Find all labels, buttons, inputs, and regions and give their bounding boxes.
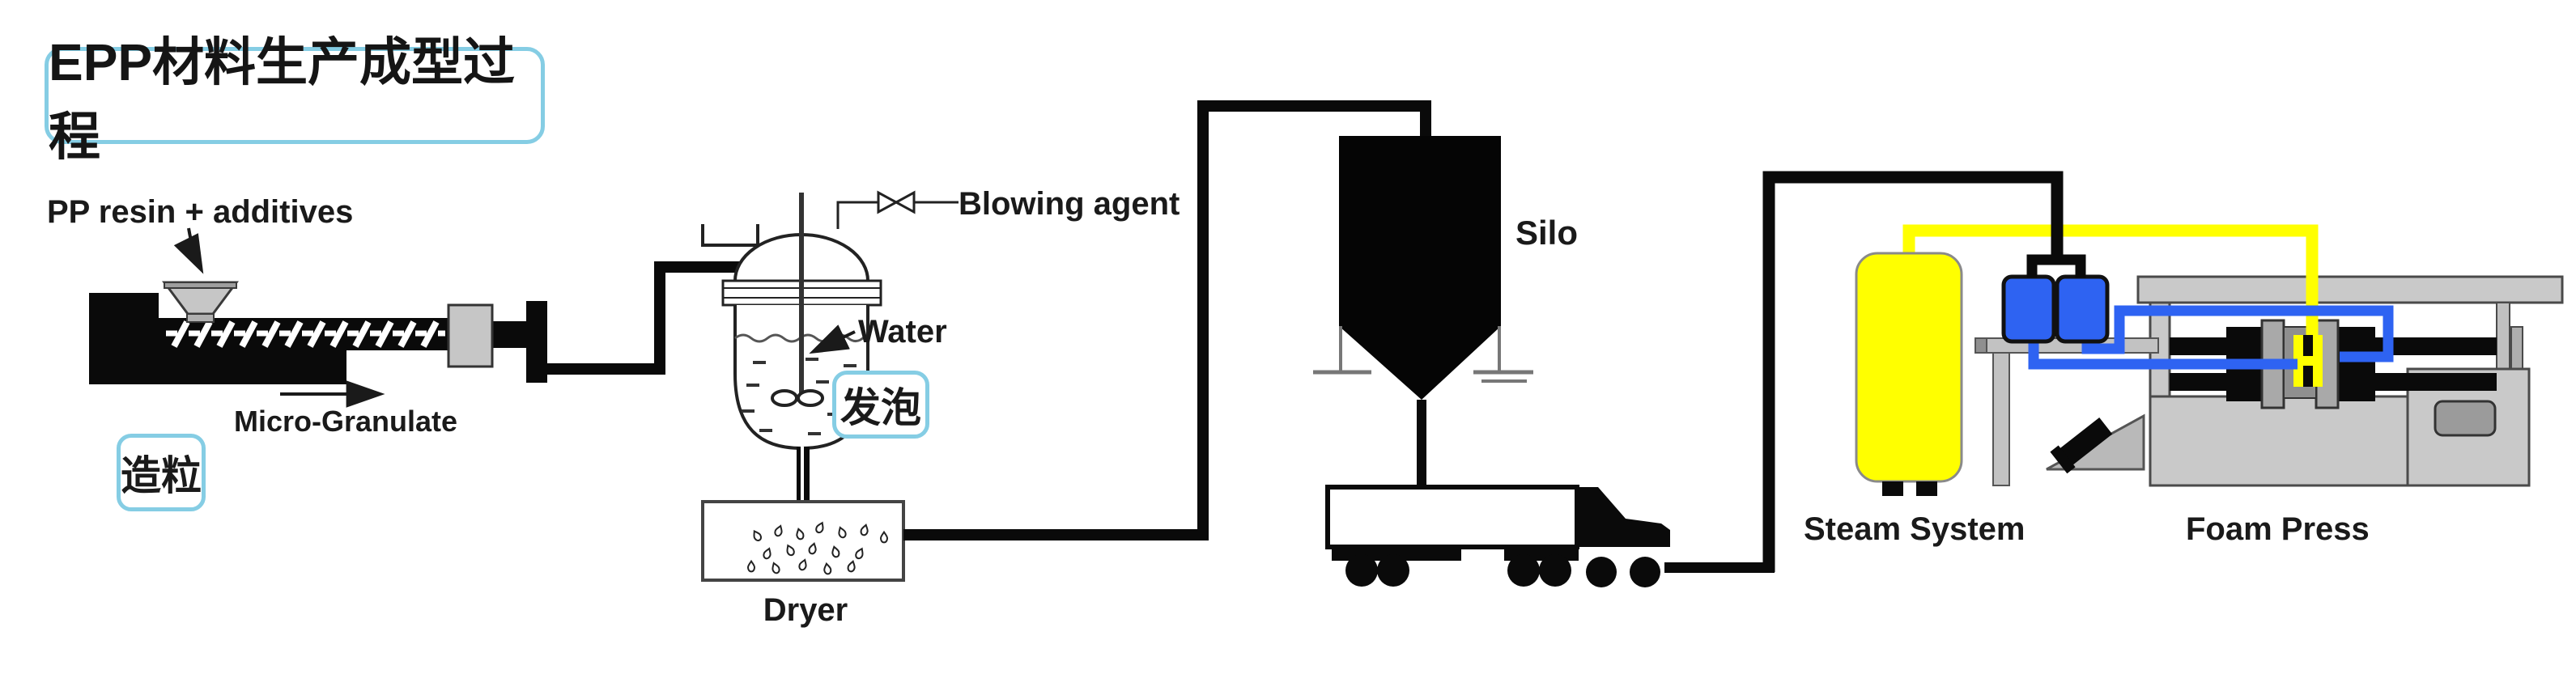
agitator-shaft — [799, 193, 804, 398]
transport-truck — [1328, 487, 1775, 587]
agitator-blade — [798, 391, 823, 405]
stage-foaming-text: 发泡 — [840, 375, 921, 434]
truck-wheels — [1345, 554, 1660, 587]
diagram-title: EPP材料生产成型过程 — [45, 47, 545, 144]
epp-process-diagram: EPP材料生产成型过程 PP resin + additives Micro-G… — [0, 0, 2576, 674]
label-water: Water — [858, 314, 947, 350]
mold-steam-core — [2293, 335, 2323, 387]
truck-trailer — [1328, 487, 1577, 547]
label-blowing-agent: Blowing agent — [959, 186, 1180, 223]
feed-hopper — [164, 282, 236, 322]
fill-gun-ramp — [2047, 415, 2144, 473]
stage-badge-granulation: 造粒 — [117, 434, 206, 511]
silo-hopper — [1313, 136, 1533, 489]
blue-tanks — [2004, 277, 2107, 341]
agitator-blade — [772, 391, 797, 405]
label-micro-granulate: Micro-Granulate — [228, 405, 463, 439]
pp-resin-feed-arrow — [189, 228, 200, 267]
cabinet-panel — [2435, 401, 2495, 435]
pipe-extruder-to-vessel — [547, 267, 749, 369]
extruder-machine — [89, 282, 547, 384]
pelletizer-die — [448, 305, 492, 367]
label-steam-system: Steam System — [1804, 511, 2025, 548]
vessel-drain — [797, 447, 810, 503]
ground-line — [1664, 562, 1775, 573]
valve-icon — [878, 193, 914, 212]
vessel-vent-bracket — [703, 224, 758, 245]
label-silo: Silo — [1515, 214, 1578, 252]
label-dryer: Dryer — [745, 592, 866, 629]
press-base — [2150, 396, 2408, 485]
blowing-agent-line — [838, 193, 959, 229]
press-top-slab — [2138, 277, 2562, 303]
diagram-title-text: EPP材料生产成型过程 — [49, 21, 541, 170]
label-pp-resin: PP resin + additives — [47, 194, 353, 231]
label-foam-press: Foam Press — [2186, 511, 2370, 548]
truck-cab — [1579, 487, 1670, 547]
dryer-box — [703, 502, 903, 580]
stage-badge-foaming: 发泡 — [832, 371, 929, 439]
silo-discharge — [1417, 400, 1426, 489]
stage-granulation-text: 造粒 — [121, 443, 202, 502]
